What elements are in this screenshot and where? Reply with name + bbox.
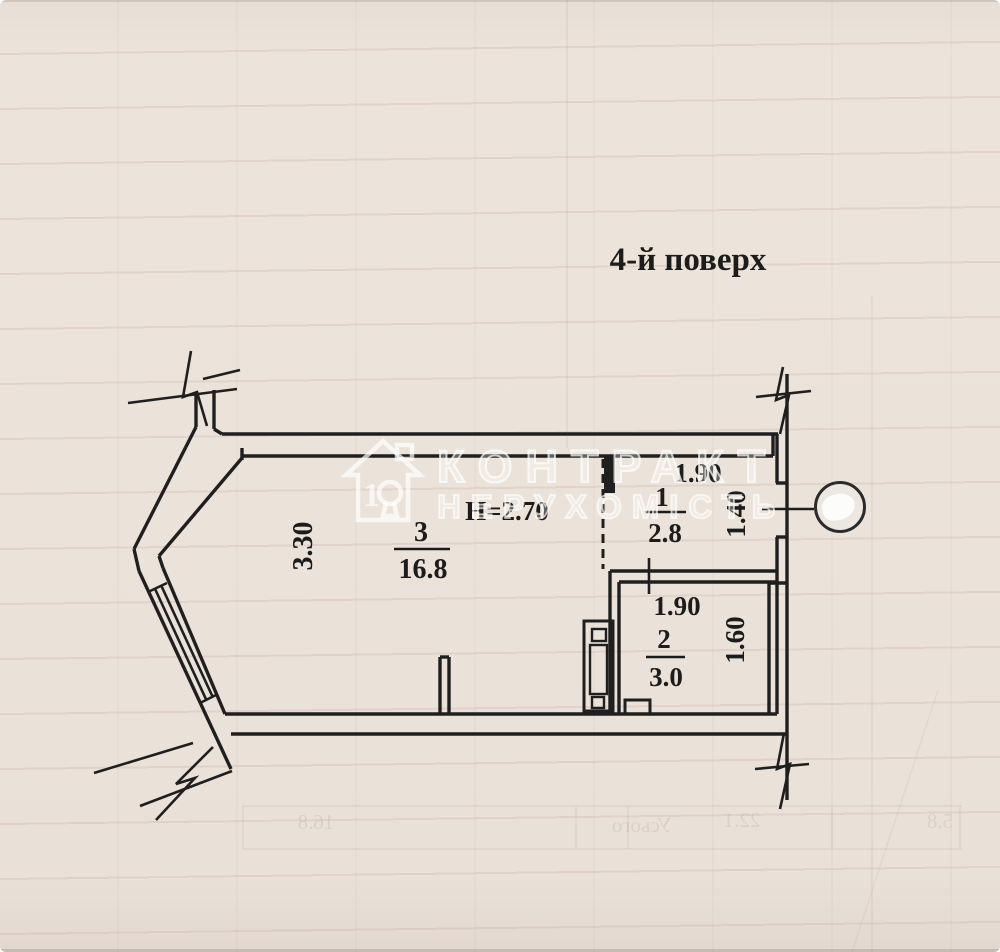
room-2-number: 2 — [657, 624, 671, 654]
page-title: 4-й поверх — [610, 242, 767, 278]
floor-plan-drawing: Усього 22.1 16.8 5.8 — [0, 0, 1000, 952]
wall-bay-upper-outer — [134, 427, 196, 549]
ghost-number: 16.8 — [298, 810, 335, 834]
ghost-number: 5.8 — [927, 809, 953, 833]
paper-crease — [871, 296, 873, 952]
break-zigzag — [156, 747, 213, 820]
scanned-floor-plan-page: Усього 22.1 16.8 5.8 — [0, 0, 1000, 952]
hole-punch-highlight — [820, 491, 858, 523]
room-3-width-dimension: 3.30 — [288, 522, 319, 571]
window-glazing-line — [161, 585, 213, 696]
hole-punch — [814, 481, 866, 533]
riser-cell — [592, 629, 606, 641]
room-1-side-dimension: 1.40 — [721, 490, 751, 537]
duct-box — [625, 700, 650, 714]
window-end-cap — [200, 694, 218, 703]
room-2-top-dimension: 1.90 — [653, 591, 700, 621]
room-1-number: 1 — [655, 482, 669, 512]
paper-crease — [566, 0, 568, 448]
ghost-word: Усього — [612, 813, 672, 837]
room-3-number: 3 — [414, 517, 428, 548]
paper-crease-lines — [852, 690, 938, 952]
riser-cell — [590, 645, 607, 694]
partition-stub — [604, 456, 615, 493]
break-tick — [203, 370, 240, 379]
wall-bay-vertex-inner — [159, 556, 163, 568]
walls — [134, 374, 787, 800]
wall-bay-vertex-outer — [134, 549, 139, 571]
room-1-top-dimension: 1.90 — [674, 458, 721, 488]
wall-break-symbol-bottom-right — [755, 733, 809, 809]
ghost-number: 22.1 — [724, 808, 761, 832]
ceiling-height-label: Н=2.70 — [465, 496, 549, 526]
wall-break-symbol-bottom-left — [94, 743, 232, 820]
wall-corner-connector — [214, 429, 222, 434]
wall-break-symbol-top-left — [128, 351, 240, 426]
bleed-through-table — [243, 806, 962, 849]
bleed-through-text: Усього 22.1 16.8 5.8 — [298, 808, 954, 837]
crease-diagonal — [852, 690, 938, 952]
wall-break-symbol-top-right — [756, 367, 811, 434]
room-3-area: 16.8 — [399, 554, 448, 585]
room-2-side-dimension: 1.60 — [720, 616, 750, 663]
wall-bay-lower-outer — [139, 571, 231, 769]
break-tick — [94, 743, 193, 773]
bay-window — [148, 583, 218, 703]
room-2-area: 3.0 — [649, 662, 683, 692]
riser-cell — [592, 697, 604, 708]
room-1-area: 2.8 — [648, 518, 682, 548]
